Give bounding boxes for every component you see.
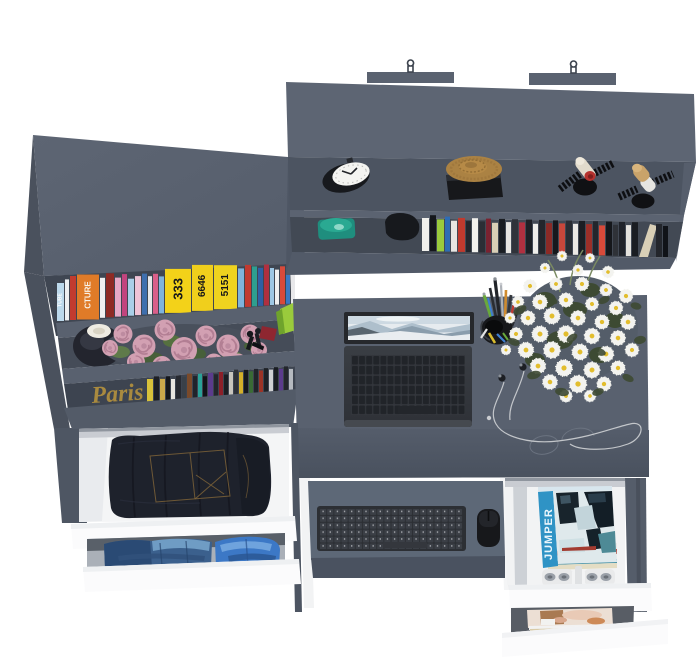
svg-text:5151: 5151 [220,274,231,297]
svg-text:333: 333 [171,278,186,300]
svg-text:JUMPER: JUMPER [543,508,555,560]
svg-text:TUBE: TUBE [58,293,64,307]
svg-text:CTURE: CTURE [84,281,93,309]
svg-text:6646: 6646 [197,274,208,297]
